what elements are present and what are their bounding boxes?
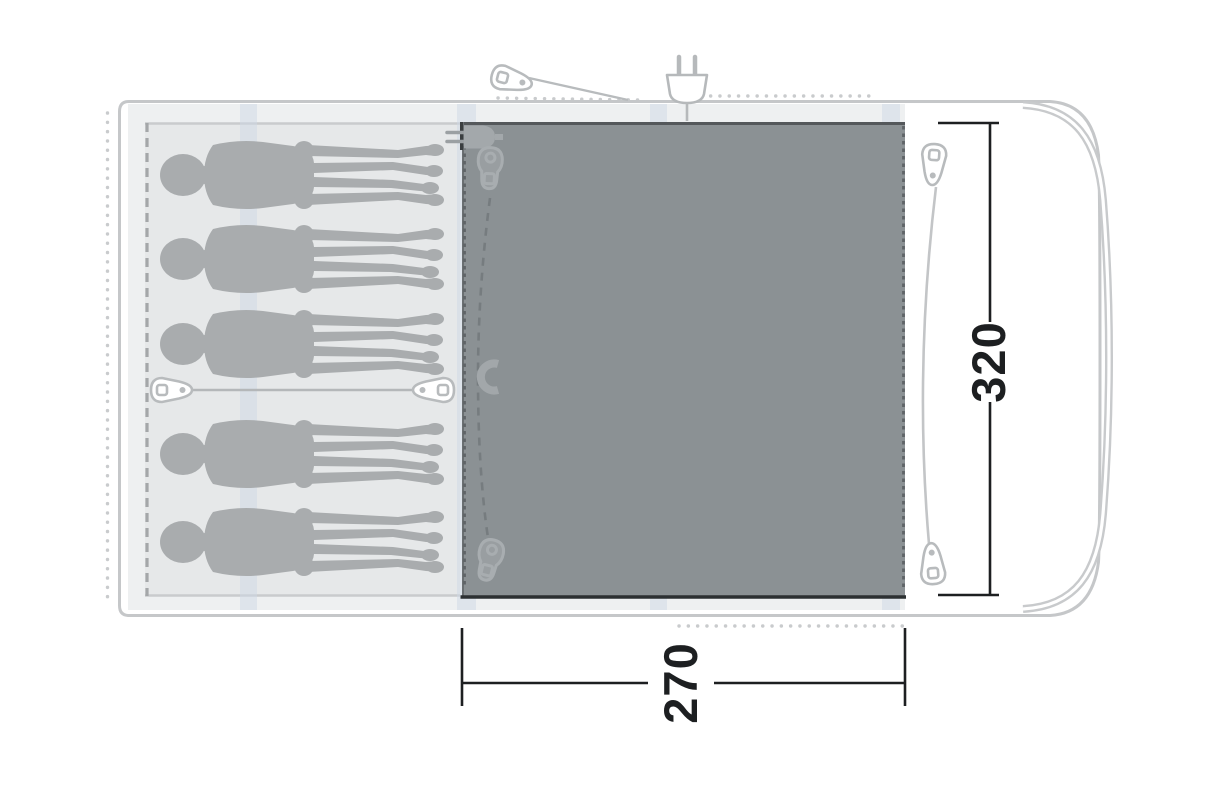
living-area	[447, 122, 906, 597]
toggle-icon	[920, 143, 947, 186]
tent-floorplan-diagram: 320 270	[0, 0, 1230, 785]
guy-line	[489, 63, 628, 100]
guy-line-peg-icon	[489, 63, 535, 96]
dimension-width-label: 270	[654, 642, 707, 723]
floorplan-canvas: 320 270	[0, 0, 1230, 785]
front-wall-curve	[1023, 105, 1109, 609]
dimension-depth-label: 320	[962, 321, 1015, 402]
front-curtain-tie	[919, 143, 947, 585]
toggle-icon	[919, 542, 946, 585]
